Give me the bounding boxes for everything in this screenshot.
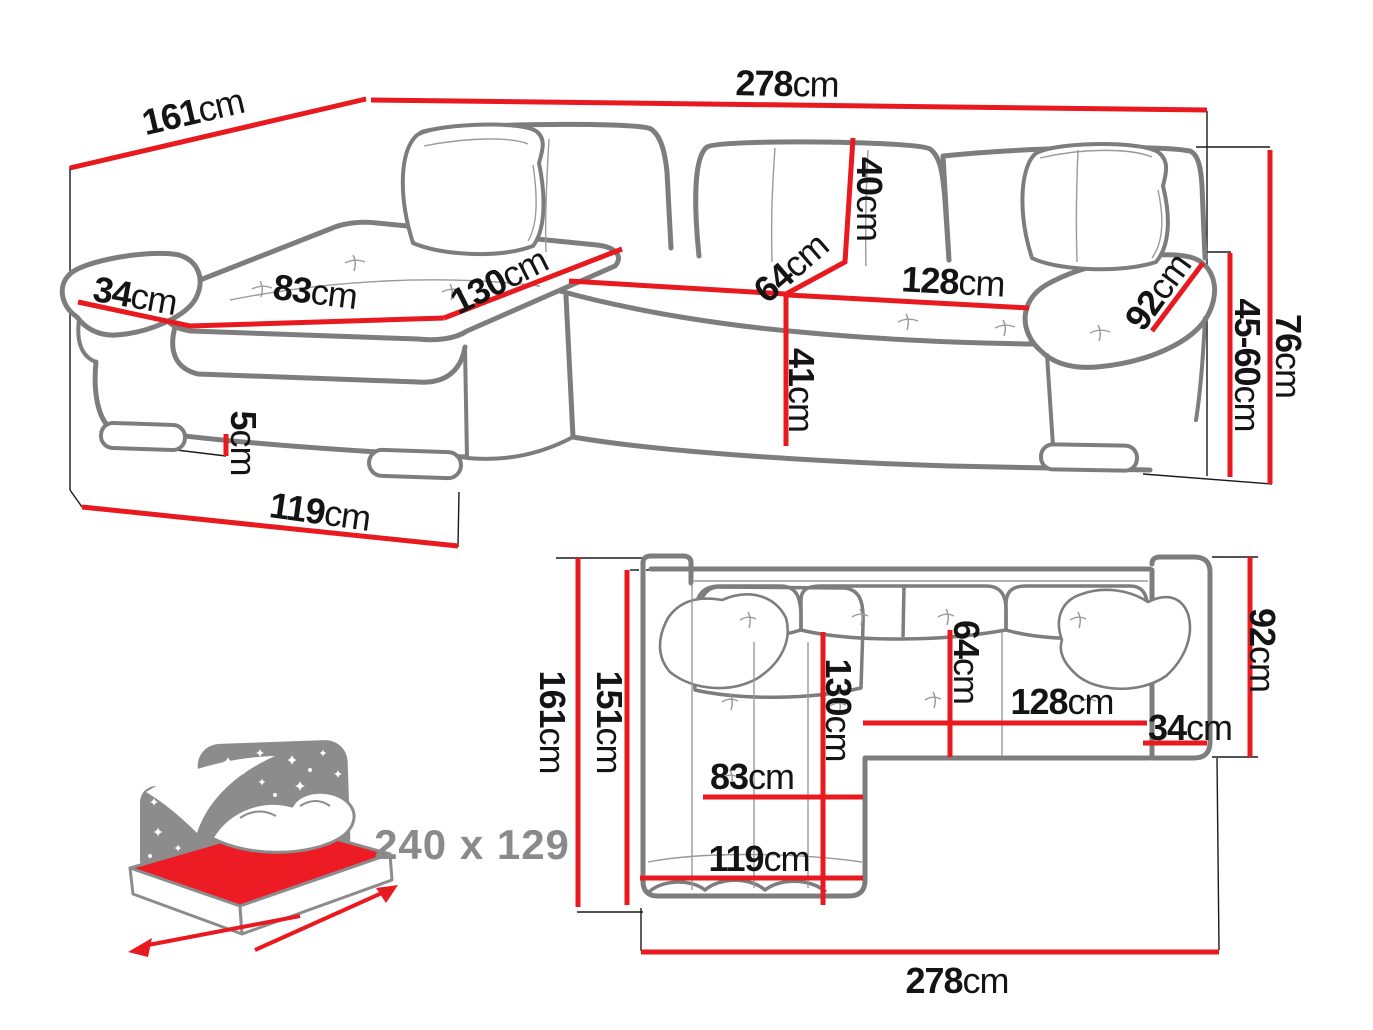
top-view-armrest-length-label: 92cm xyxy=(1244,608,1280,692)
top-view-inner-depth-label: 151cm xyxy=(591,670,627,773)
top-view-total-depth-label: 161cm xyxy=(534,670,570,773)
top-view-chaise-seat-width-label: 83cm xyxy=(710,759,794,795)
diagram-canvas xyxy=(0,0,1373,1030)
perspective-seat-height-label: 41cm xyxy=(783,348,819,432)
bed-with-starry-headboard-icon xyxy=(128,739,398,957)
top-view-seat-width-label: 128cm xyxy=(1010,684,1113,720)
sofa-dimensions-diagram: 161cm 278cm 34cm 83cm 130cm 40cm 64cm 12… xyxy=(0,0,1373,1030)
perspective-leg-height-label: 5cm xyxy=(225,410,261,475)
top-view-chaise-length-label: 130cm xyxy=(820,658,856,761)
top-view-total-width-label: 278cm xyxy=(905,963,1008,999)
top-view-armrest-width-label: 34cm xyxy=(1148,710,1232,746)
top-view-seat-depth-label: 64cm xyxy=(948,620,984,704)
perspective-backrest-height-label: 40cm xyxy=(851,157,887,241)
perspective-chaise-seat-width-label: 83cm xyxy=(271,269,359,315)
sleeping-area-dimensions-label: 240 x 129 xyxy=(374,821,570,869)
perspective-total-height-label: 76cm xyxy=(1270,314,1306,398)
perspective-armrest-height-label: 45-60cm xyxy=(1229,298,1265,431)
perspective-seat-width-label: 128cm xyxy=(901,261,1006,302)
top-view-chaise-width-label: 119cm xyxy=(708,841,809,877)
perspective-total-width-label: 278cm xyxy=(735,65,839,103)
